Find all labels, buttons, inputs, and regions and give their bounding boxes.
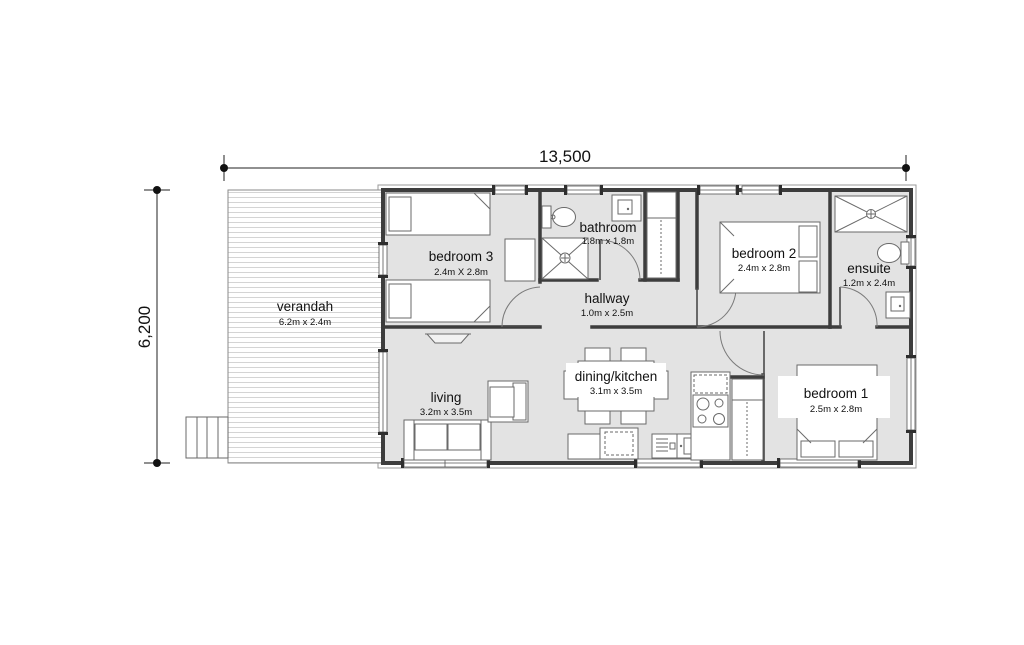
vanity-symbol [612,195,641,221]
living-dims: 3.2m x 3.5m [420,407,472,418]
bathroom-top-window [564,185,603,195]
verandah-dims: 6.2m x 2.4m [279,317,331,328]
toilet-symbol [542,206,576,228]
overall-depth-label: 6,200 [135,306,154,349]
living-left-window [378,349,388,435]
bedroom3-dims: 2.4m X 2.8m [434,267,488,278]
bathroom-dims: 1.8m x 1.8m [582,236,634,247]
floor-plan-page: 13,500 6,200 [0,0,1024,645]
dining-kitchen-label: dining/kitchen [575,369,658,384]
bedroom1-right-window [906,355,916,433]
bedroom2-top-window-1 [697,185,739,195]
ensuite-label: ensuite [847,261,891,276]
single-bed-symbol [386,193,490,235]
linen-closet-symbol [647,192,676,278]
stove-symbol [693,395,728,427]
wardrobe-symbol [505,239,535,281]
dining-kitchen-dims: 3.1m x 3.5m [590,386,642,397]
bathroom-label: bathroom [579,220,636,235]
sofa-symbol [404,420,491,460]
bedroom1-label: bedroom 1 [804,386,869,401]
verandah-label: verandah [277,299,333,314]
hallway-dims: 1.0m x 2.5m [581,308,633,319]
single-bed-symbol [386,280,490,322]
bedroom2-label: bedroom 2 [732,246,797,261]
overall-width-label: 13,500 [539,147,591,166]
hallway-label: hallway [584,291,629,306]
horizontal-dimension: 13,500 [220,147,910,181]
bedroom3-left-window [378,242,388,278]
floor-plan-drawing: 13,500 6,200 [0,0,1024,645]
oven-symbol [652,434,677,458]
vertical-dimension: 6,200 [135,186,170,467]
steps-symbol [186,417,228,458]
living-label: living [431,390,462,405]
fridge-symbol [732,379,763,460]
vanity-symbol [886,292,910,318]
bedroom1-dims: 2.5m x 2.8m [810,404,862,415]
armchair-symbol [488,381,528,422]
bedroom2-top-window-2 [742,185,782,195]
ensuite-dims: 1.2m x 2.4m [843,278,895,289]
shower-symbol [835,196,907,232]
bedroom3-top-window [492,185,528,195]
bedroom3-label: bedroom 3 [429,249,494,264]
bedroom2-dims: 2.4m x 2.8m [738,263,790,274]
